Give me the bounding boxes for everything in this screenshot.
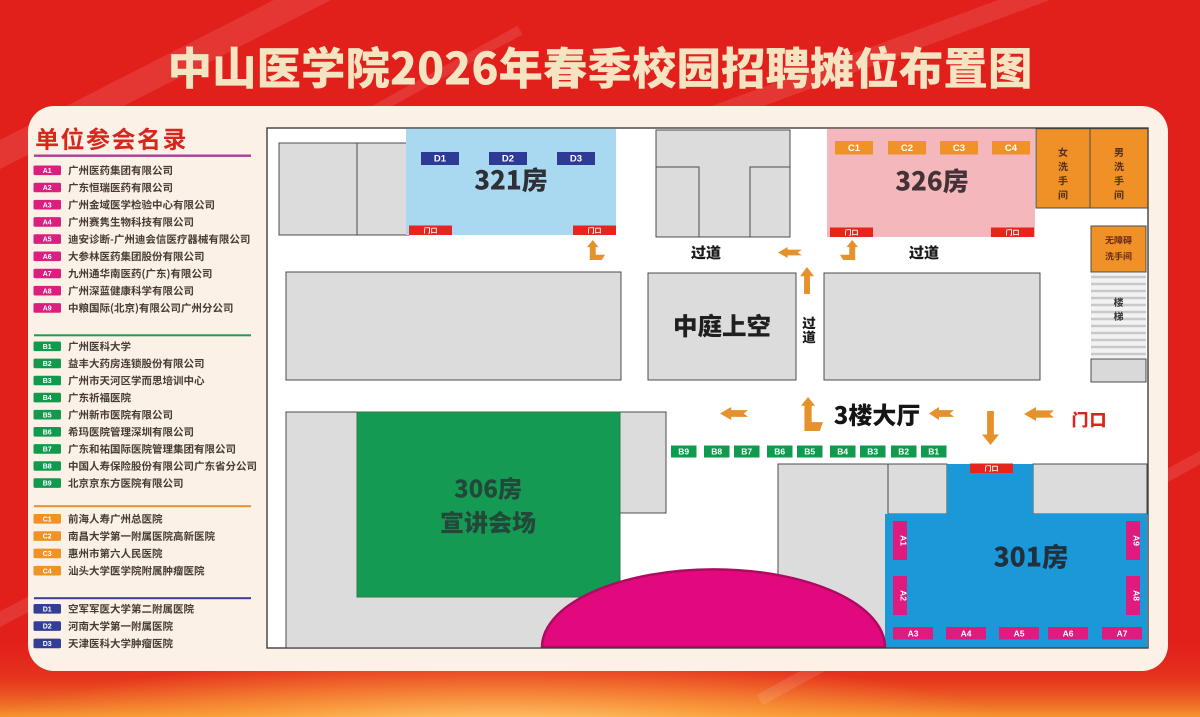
svg-text:D3: D3 bbox=[43, 641, 52, 648]
svg-text:A9: A9 bbox=[43, 306, 52, 313]
svg-text:B5: B5 bbox=[804, 447, 815, 457]
svg-text:A3: A3 bbox=[43, 202, 52, 209]
svg-text:D2: D2 bbox=[502, 154, 514, 165]
svg-text:C3: C3 bbox=[953, 143, 965, 154]
svg-text:A4: A4 bbox=[43, 220, 52, 227]
svg-text:B6: B6 bbox=[774, 447, 785, 457]
svg-text:D1: D1 bbox=[43, 606, 52, 613]
svg-text:B8: B8 bbox=[43, 464, 52, 471]
svg-text:C1: C1 bbox=[43, 516, 52, 523]
svg-text:A3: A3 bbox=[908, 629, 919, 639]
svg-text:D1: D1 bbox=[434, 154, 447, 165]
svg-text:A6: A6 bbox=[1063, 629, 1074, 639]
svg-text:B2: B2 bbox=[43, 361, 52, 368]
svg-text:C2: C2 bbox=[901, 143, 913, 154]
svg-text:A2: A2 bbox=[43, 185, 52, 192]
svg-text:B6: B6 bbox=[43, 429, 52, 436]
svg-text:C3: C3 bbox=[43, 551, 52, 558]
svg-text:A1: A1 bbox=[43, 168, 52, 175]
svg-text:B4: B4 bbox=[43, 395, 52, 402]
svg-text:C1: C1 bbox=[848, 143, 861, 154]
svg-text:A4: A4 bbox=[961, 629, 972, 639]
svg-text:A8: A8 bbox=[1131, 590, 1141, 601]
svg-text:B2: B2 bbox=[898, 447, 909, 457]
svg-text:B7: B7 bbox=[43, 447, 52, 454]
svg-text:B9: B9 bbox=[43, 481, 52, 488]
svg-text:C2: C2 bbox=[43, 534, 52, 541]
svg-text:D3: D3 bbox=[570, 154, 582, 165]
svg-text:A2: A2 bbox=[898, 590, 908, 601]
svg-text:A6: A6 bbox=[43, 254, 52, 261]
svg-text:B1: B1 bbox=[43, 344, 52, 351]
svg-text:B5: B5 bbox=[43, 412, 52, 419]
svg-text:A7: A7 bbox=[43, 271, 52, 278]
svg-text:B3: B3 bbox=[43, 378, 52, 385]
svg-text:A7: A7 bbox=[1117, 629, 1128, 639]
svg-text:B8: B8 bbox=[711, 447, 722, 457]
svg-text:C4: C4 bbox=[43, 568, 52, 575]
svg-text:B9: B9 bbox=[678, 447, 689, 457]
svg-text:B1: B1 bbox=[928, 447, 939, 457]
svg-text:A5: A5 bbox=[1014, 629, 1025, 639]
svg-text:B4: B4 bbox=[837, 447, 848, 457]
svg-text:B3: B3 bbox=[867, 447, 878, 457]
svg-text:A9: A9 bbox=[1131, 535, 1141, 546]
svg-text:A8: A8 bbox=[43, 288, 52, 295]
svg-text:D2: D2 bbox=[43, 624, 52, 631]
svg-text:C4: C4 bbox=[1005, 143, 1018, 154]
svg-text:B7: B7 bbox=[741, 447, 752, 457]
svg-text:A1: A1 bbox=[898, 535, 908, 546]
svg-text:A5: A5 bbox=[43, 237, 52, 244]
